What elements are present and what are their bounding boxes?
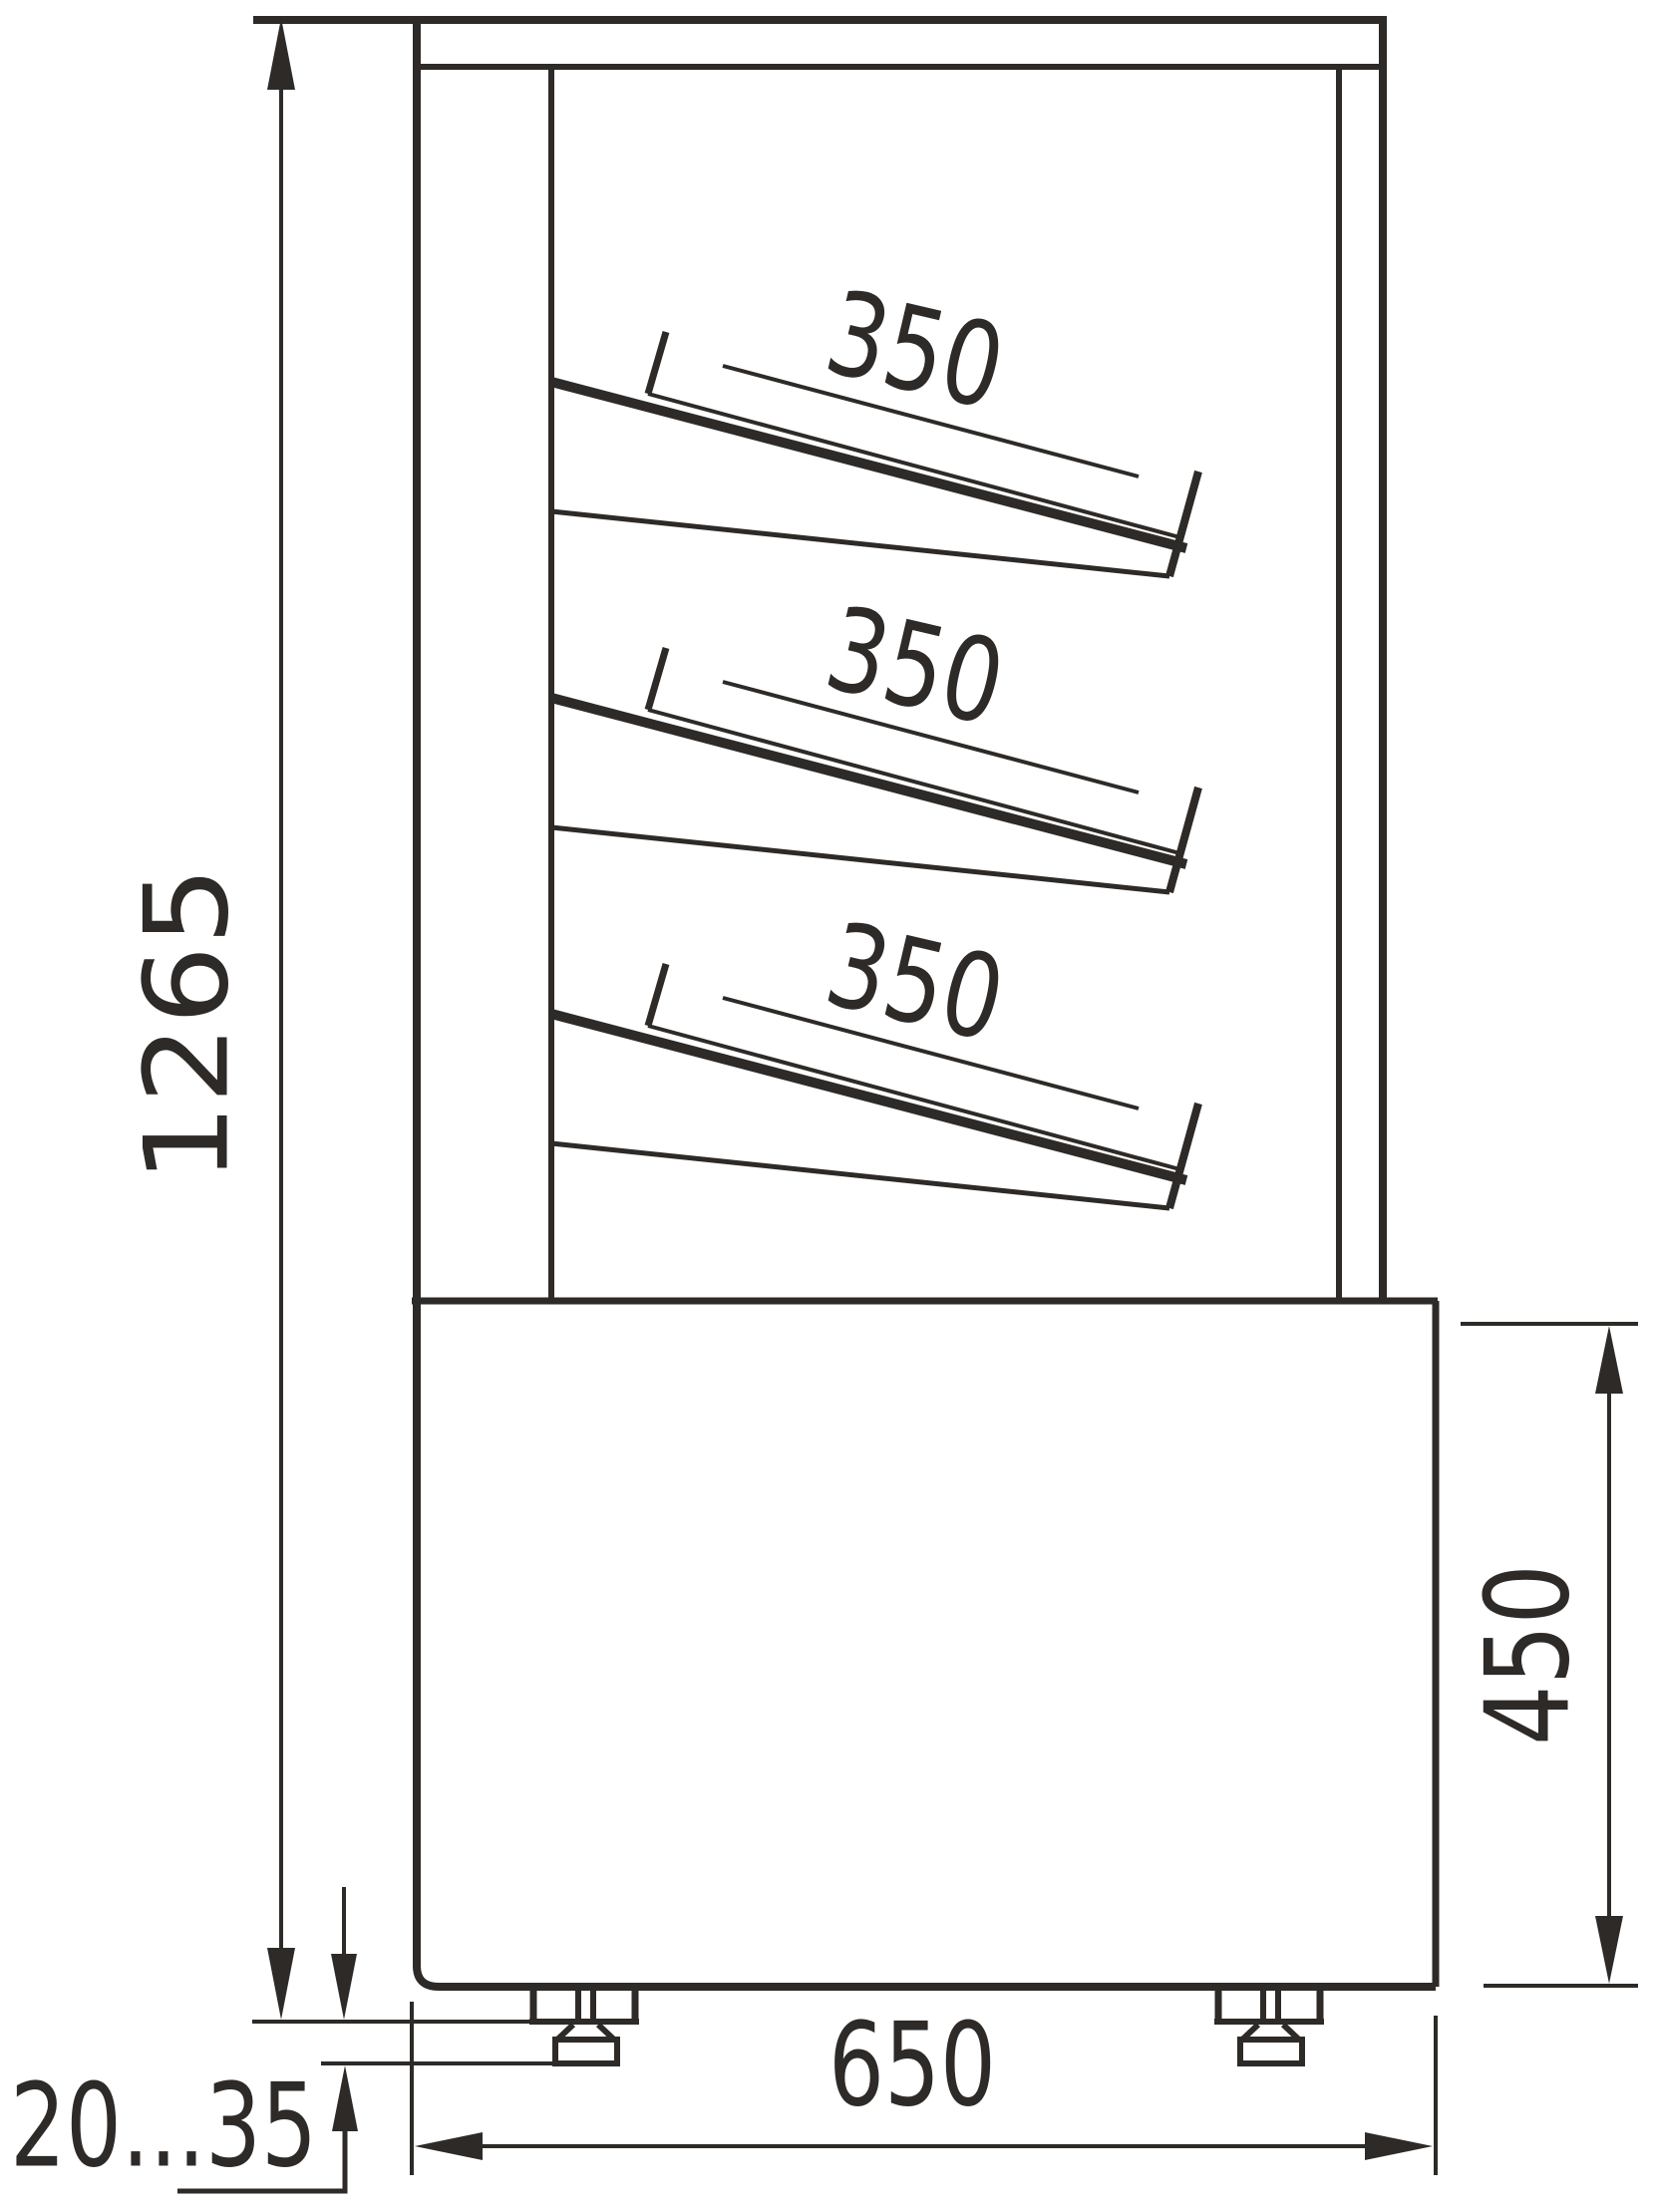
shelf-depth-label: 350 xyxy=(815,581,1016,753)
base-height-label: 450 xyxy=(1462,1564,1596,1745)
arrowhead-down xyxy=(267,1948,295,2020)
lower-arrowhead-up xyxy=(332,2065,358,2131)
base-depth-label: 650 xyxy=(828,1999,996,2133)
foot-bracket xyxy=(533,1987,635,2019)
shelf-3: 350 xyxy=(551,897,1198,1208)
foot-left xyxy=(529,1987,639,2063)
shelf-depth-label: 350 xyxy=(815,897,1016,1069)
overall-height-label: 1265 xyxy=(121,866,255,1183)
shelf-1: 350 xyxy=(551,265,1198,576)
upper-arrowhead-down xyxy=(331,1954,357,2020)
shelf-2: 350 xyxy=(551,581,1198,892)
arrowhead-right xyxy=(1365,2132,1433,2160)
foot-pad xyxy=(555,2040,617,2063)
foot-right xyxy=(1214,1987,1324,2063)
shelf-end-cap xyxy=(1169,472,1198,576)
arrowhead-down xyxy=(1595,1916,1623,1984)
dim-overall-height: 1265 xyxy=(121,18,534,2022)
arrowhead-left xyxy=(415,2132,483,2160)
dim-base-depth: 650 xyxy=(412,1999,1436,2176)
shelf-depth-label: 350 xyxy=(815,265,1016,437)
technical-drawing-page: 350 350 350 xyxy=(0,0,1654,2212)
dim-base-height: 450 xyxy=(1461,1324,1638,1986)
arrowhead-up xyxy=(267,18,295,90)
foot-range-label: 20...35 xyxy=(10,2059,317,2194)
arrowhead-up xyxy=(1595,1326,1623,1394)
foot-pad xyxy=(1240,2040,1302,2063)
shelf-dim-tick xyxy=(648,332,666,394)
foot-stem xyxy=(578,1987,593,2022)
